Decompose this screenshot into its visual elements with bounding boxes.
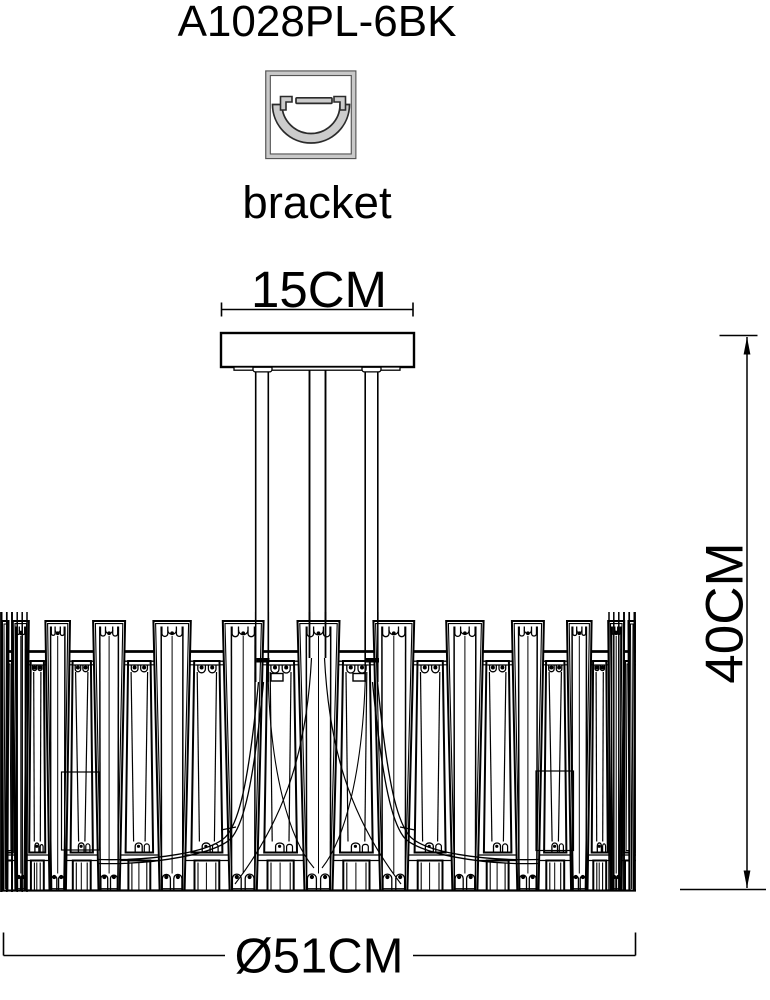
svg-text:Ø51CM: Ø51CM — [235, 930, 404, 984]
svg-text:bracket: bracket — [242, 177, 392, 228]
svg-text:40CM: 40CM — [696, 542, 755, 683]
svg-text:A1028PL-6BK: A1028PL-6BK — [178, 0, 457, 46]
